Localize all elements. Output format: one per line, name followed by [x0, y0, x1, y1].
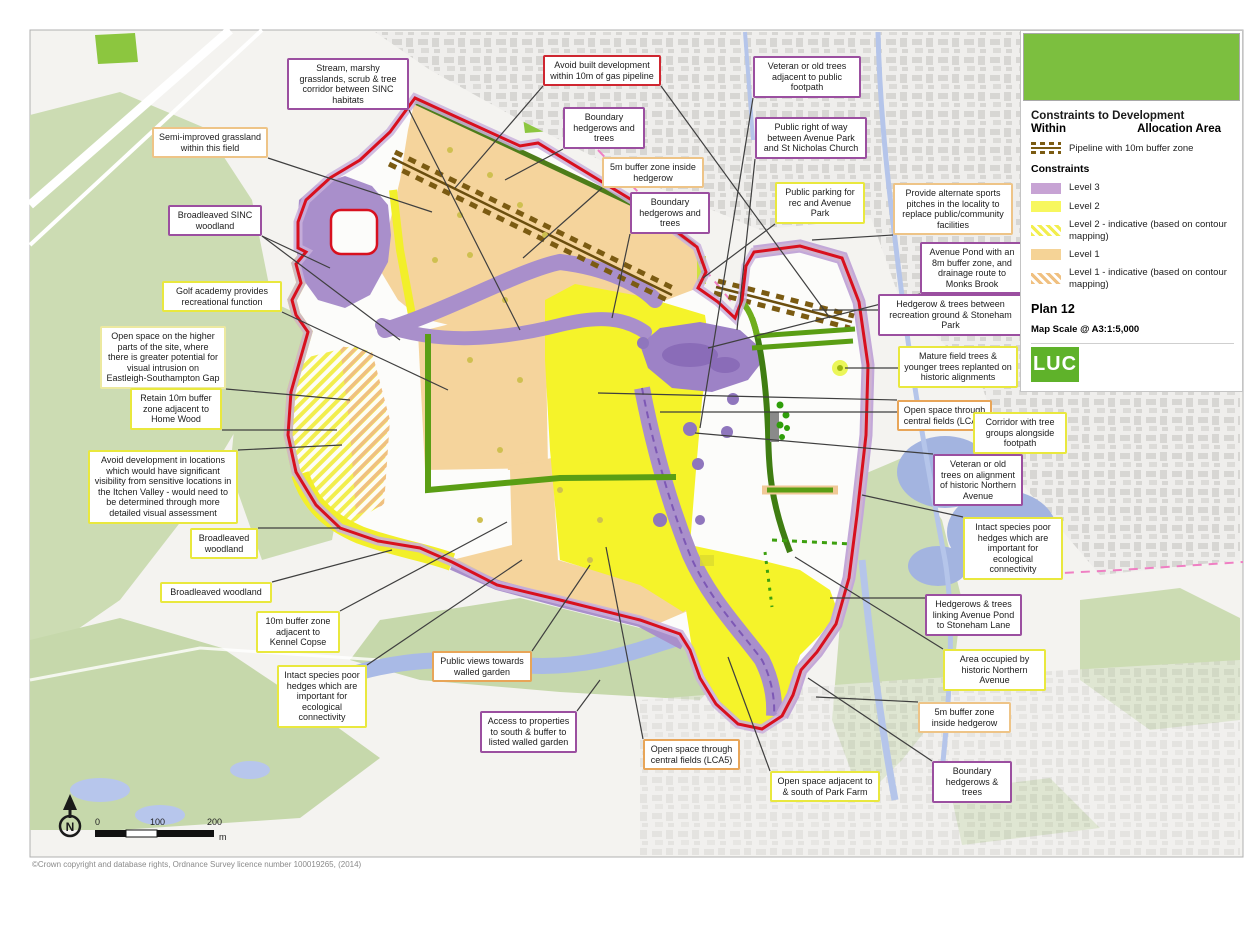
callout-public-right-of-way: Public right of way between Avenue Park … — [755, 117, 867, 159]
legend-item-level2-indicative: Level 2 - indicative (based on contour m… — [1069, 219, 1234, 242]
callout-boundary-hedgerows-3: Boundary hedgerows & trees — [932, 761, 1012, 803]
callout-veteran-trees-footpath: Veteran or old trees adjacent to public … — [753, 56, 861, 98]
callout-buffer-hedgerow-top: 5m buffer zone inside hedgerow — [602, 157, 704, 188]
callout-hedgerow-rec-stoneham: Hedgerow & trees between recreation grou… — [878, 294, 1023, 336]
callout-broadleaved-sinc-woodland: Broadleaved SINC woodland — [168, 205, 262, 236]
callout-alternate-sports-pitches: Provide alternate sports pitches in the … — [893, 183, 1013, 235]
plan-number: Plan 12 — [1031, 302, 1234, 316]
legend-title-allocation-area: Allocation Area — [1137, 123, 1221, 135]
pipeline-swatch-icon — [1031, 142, 1061, 154]
callout-veteran-trees-northern-avenue: Veteran or old trees on alignment of his… — [933, 454, 1023, 506]
callout-avoid-dev-itchen-valley: Avoid development in locations which wou… — [88, 450, 238, 524]
level2-swatch — [1031, 201, 1061, 212]
callout-semi-improved-grassland: Semi-improved grassland within this fiel… — [152, 127, 268, 158]
callout-open-space-lca5-bottom: Open space through central fields (LCA5) — [643, 739, 740, 770]
callout-buffer-kennel-copse: 10m buffer zone adjacent to Kennel Copse — [256, 611, 340, 653]
legend-title-line2: Within Allocation Area — [1031, 123, 1221, 135]
level3-swatch — [1031, 183, 1061, 194]
copyright-notice: ©Crown copyright and database rights, Or… — [32, 860, 361, 869]
callout-hedgerows-linking: Hedgerows & trees linking Avenue Pond to… — [925, 594, 1022, 636]
level1-swatch — [1031, 249, 1061, 260]
legend-panel: Constraints to Development Within Alloca… — [1020, 30, 1243, 392]
callout-intact-hedges-left: Intact species poor hedges which are imp… — [277, 665, 367, 728]
constraints-map-page: N 0 100 200 m Stream, marshy grasslands,… — [0, 0, 1260, 945]
legend-item-level2: Level 2 — [1069, 201, 1100, 212]
callout-stream-corridor: Stream, marshy grasslands, scrub & tree … — [287, 58, 409, 110]
legend-title-line1: Constraints to Development — [1031, 109, 1234, 123]
callout-retain-10m-home-wood: Retain 10m buffer zone adjacent to Home … — [130, 388, 222, 430]
legend-title-within: Within — [1031, 123, 1066, 135]
callout-area-historic-northern-avenue: Area occupied by historic Northern Avenu… — [943, 649, 1046, 691]
callout-avenue-pond: Avenue Pond with an 8m buffer zone, and … — [920, 242, 1024, 294]
legend-item-level1-indicative: Level 1 - indicative (based on contour m… — [1069, 267, 1234, 290]
callout-boundary-hedgerows-2: Boundary hedgerows and trees — [630, 192, 710, 234]
callout-open-space-higher-parts: Open space on the higher parts of the si… — [100, 326, 226, 389]
legend-item-level1: Level 1 — [1069, 249, 1100, 260]
callout-public-parking: Public parking for rec and Avenue Park — [775, 182, 865, 224]
legend-pipeline-label: Pipeline with 10m buffer zone — [1069, 143, 1193, 154]
callout-mature-field-trees: Mature field trees & younger trees repla… — [898, 346, 1018, 388]
luc-logo: LUC — [1031, 347, 1079, 382]
level2-indicative-swatch — [1031, 225, 1061, 236]
callout-boundary-hedgerows-1: Boundary hedgerows and trees — [563, 107, 645, 149]
callout-avoid-gas-pipeline: Avoid built development within 10m of ga… — [543, 55, 661, 86]
legend-green-banner — [1023, 33, 1240, 101]
legend-constraints-heading: Constraints — [1031, 163, 1234, 175]
callout-buffer-hedgerow-right: 5m buffer zone inside hedgerow — [918, 702, 1011, 733]
callout-broadleaved-woodland-2: Broadleaved woodland — [160, 582, 272, 603]
level1-indicative-swatch — [1031, 273, 1061, 284]
callout-access-properties-south: Access to properties to south & buffer t… — [480, 711, 577, 753]
callout-golf-academy: Golf academy provides recreational funct… — [162, 281, 282, 312]
callout-broadleaved-woodland-1: Broadleaved woodland — [190, 528, 258, 559]
callout-corridor-tree-groups: Corridor with tree groups alongside foot… — [973, 412, 1067, 454]
legend-item-level3: Level 3 — [1069, 182, 1100, 193]
callout-public-views-walled-garden: Public views towards walled garden — [432, 651, 532, 682]
callout-open-space-park-farm: Open space adjacent to & south of Park F… — [770, 771, 880, 802]
map-scale-label: Map Scale @ A3:1:5,000 — [1031, 324, 1234, 335]
callout-intact-hedges-right: Intact species poor hedges which are imp… — [963, 517, 1063, 580]
